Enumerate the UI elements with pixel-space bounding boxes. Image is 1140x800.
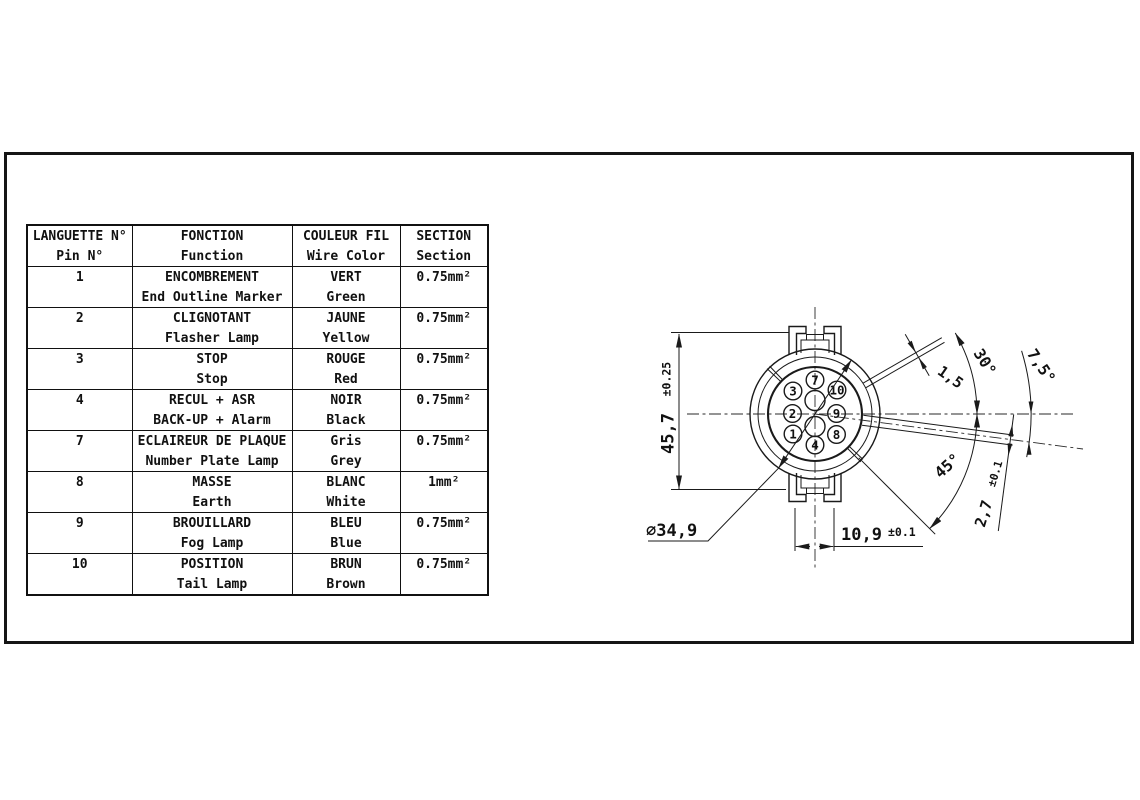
pin-label: 2	[789, 406, 797, 421]
dim-tab-width: 10,9 ±0.1	[795, 508, 923, 551]
dim-slot-right-text: 2,7 ±0.1	[970, 458, 1008, 529]
page: LANGUETTE N°Pin N° FONCTIONFunction COUL…	[0, 0, 1140, 800]
dim-height-text: 45,7 ±0.25	[659, 362, 679, 454]
pin-label: 9	[833, 406, 841, 421]
drawing-sheet-frame: LANGUETTE N°Pin N° FONCTIONFunction COUL…	[4, 152, 1134, 644]
pin-label: 8	[833, 427, 841, 442]
dim-slot-top: 1,5	[905, 334, 967, 392]
dim-angle-bottom-text: 45°	[931, 450, 964, 482]
pin-label: 7	[811, 372, 819, 387]
dim-slot-top-text: 1,5	[934, 362, 967, 392]
connector-drawing: 7 3 10 2 9 1 8 4	[7, 155, 1131, 641]
centerlines	[687, 307, 1083, 570]
pin-label: 3	[789, 383, 797, 398]
dim-height: 45,7 ±0.25	[659, 333, 790, 490]
dim-tab-width-tol: ±0.1	[888, 525, 916, 539]
pin-label: 4	[811, 437, 819, 452]
dim-tab-width-text: 10,9	[841, 525, 882, 545]
dim-angle-bottom: 45°	[930, 414, 977, 529]
pin-label: 1	[789, 426, 797, 441]
dim-angle-right: 7,5°	[1022, 346, 1059, 457]
dim-diameter-text: ∅34,9	[646, 521, 697, 541]
dim-angle-top-text: 30°	[970, 346, 1000, 379]
